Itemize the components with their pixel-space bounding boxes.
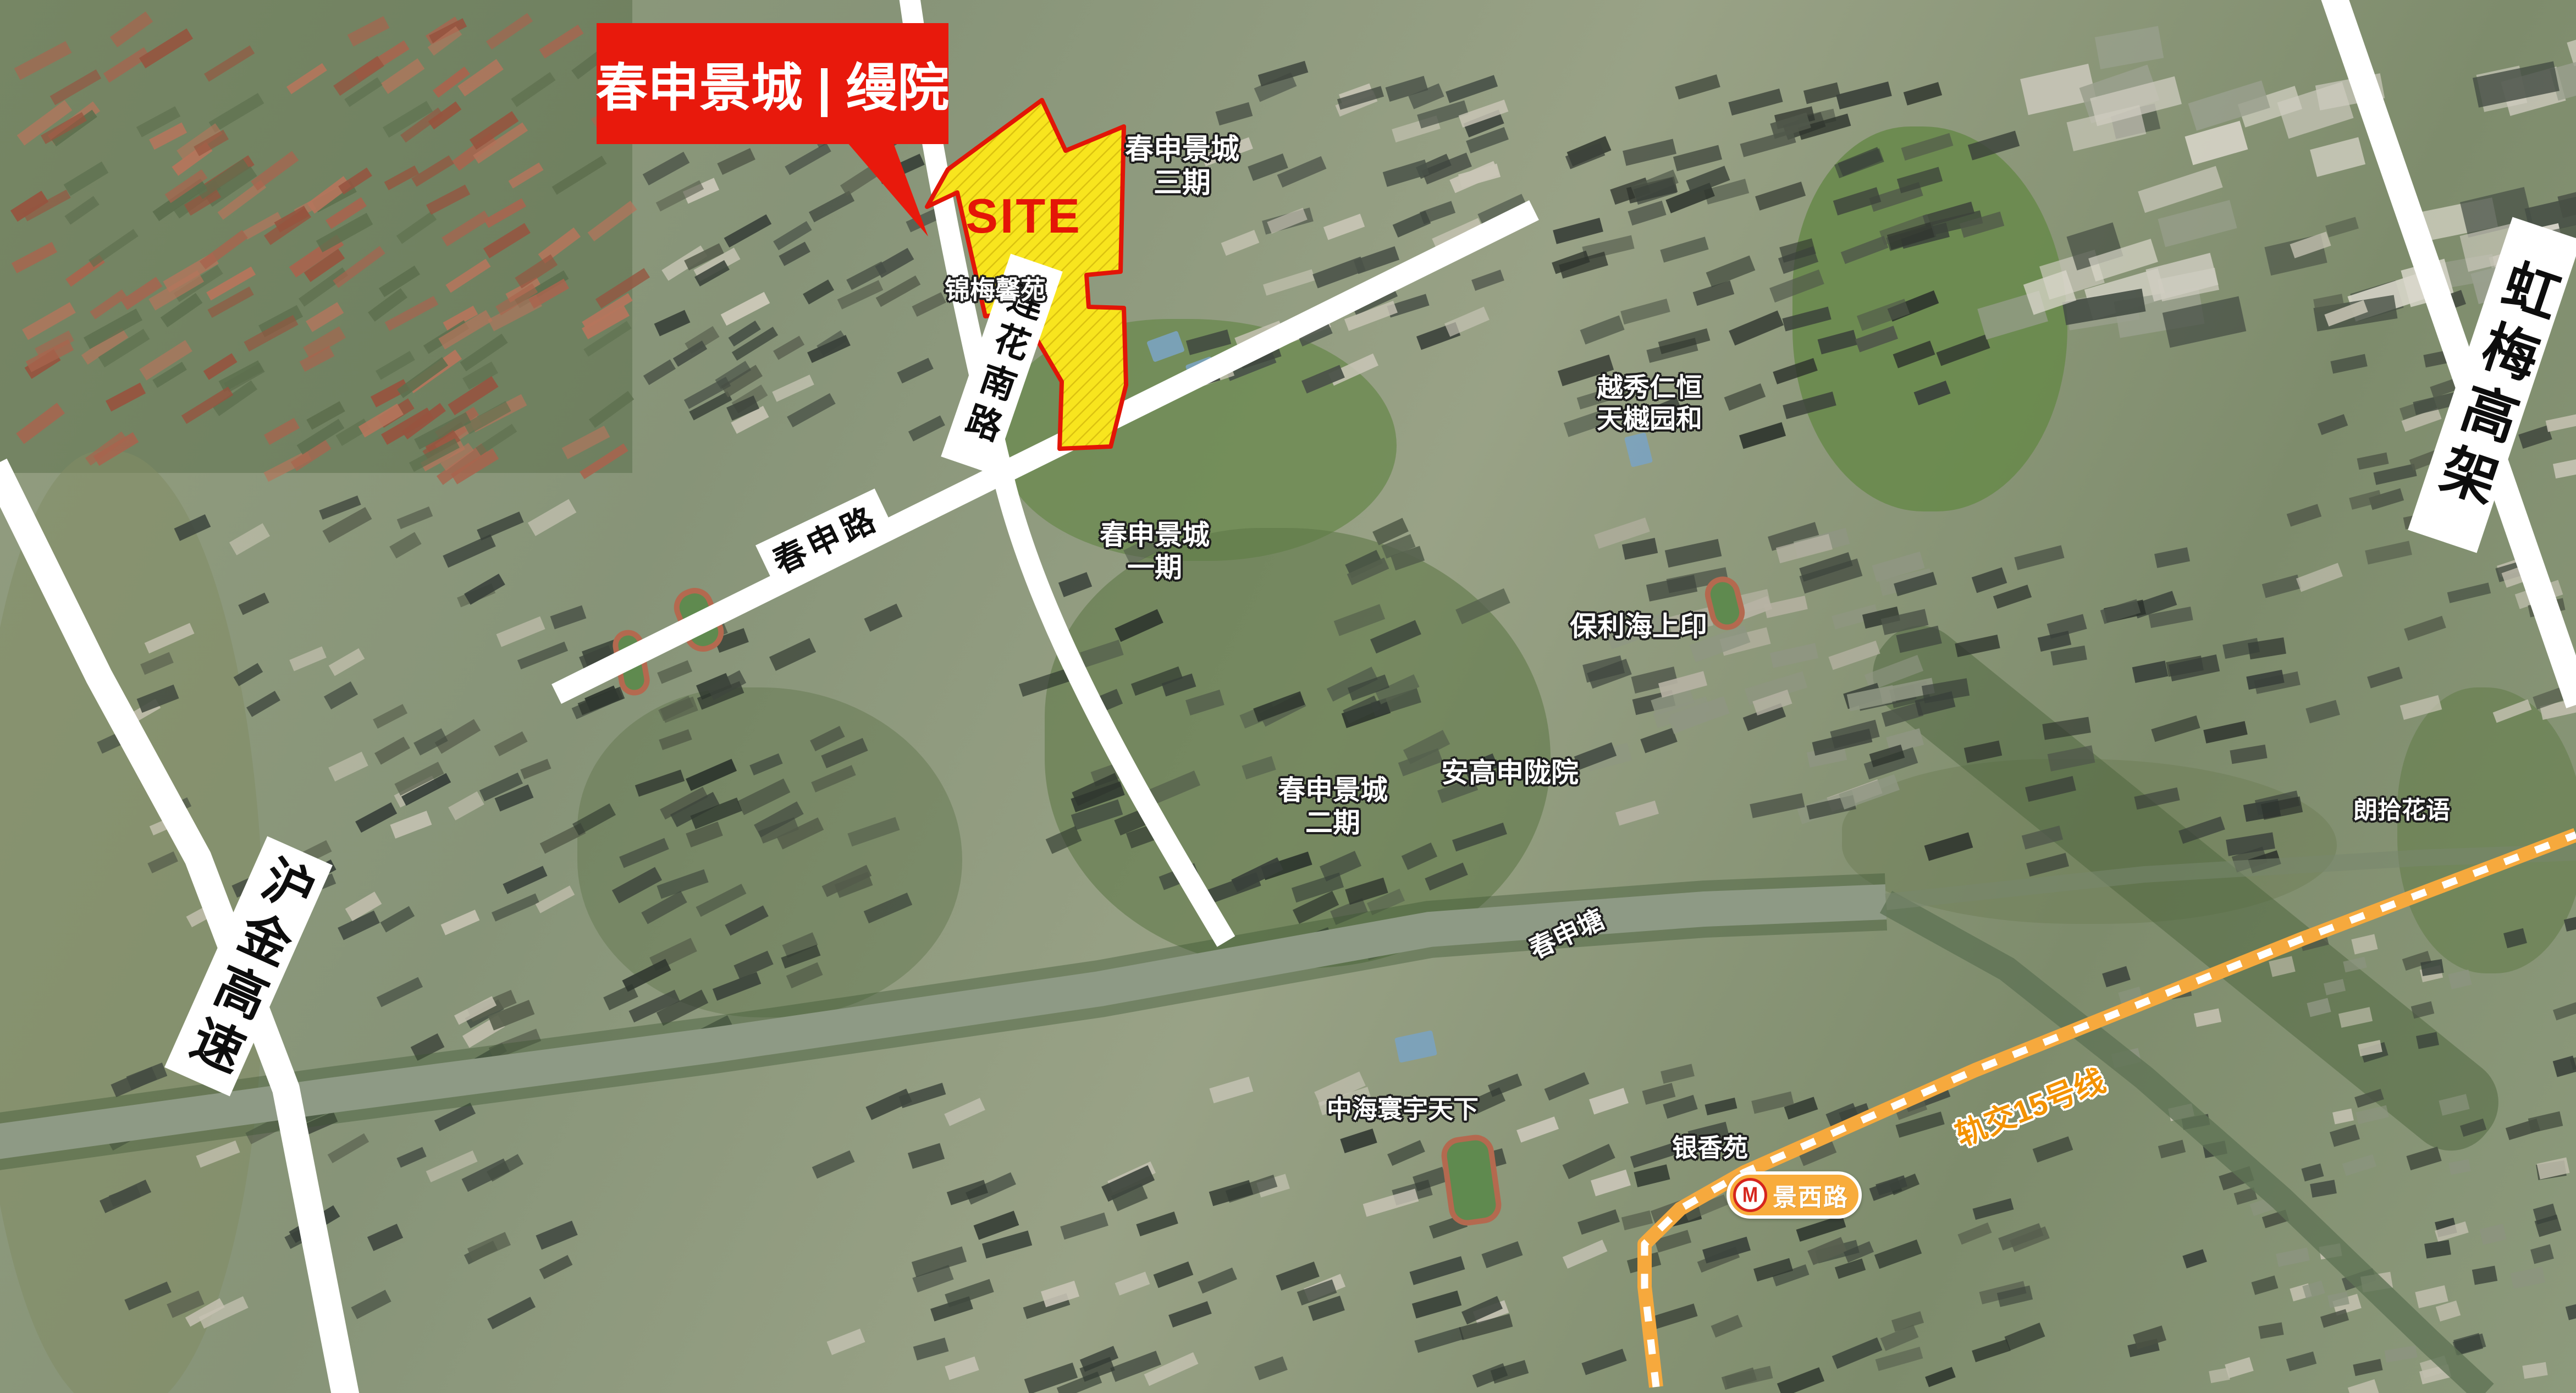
- place-label-chunshenjingcheng-2: 春申景城 二期: [1250, 774, 1415, 839]
- place-label-chunshenjingcheng-1: 春申景城 一期: [1072, 519, 1237, 584]
- metro-station-name: 景西路: [1773, 1177, 1849, 1213]
- place-label-angao-shenlongyuan: 安高申陇院: [1427, 757, 1592, 789]
- map-overlay-graphics: [0, 0, 2576, 1393]
- metro-station-jingxilu: M 景西路: [1726, 1171, 1862, 1219]
- label-text: 安高申陇院: [1427, 757, 1592, 789]
- label-text: 二期: [1250, 807, 1415, 839]
- place-label-yinxiangyuan: 银香苑: [1669, 1133, 1751, 1163]
- place-label-langshihuayu: 朗拾花语: [2347, 796, 2457, 825]
- site-banner: 春申景城 | 缦院: [597, 23, 948, 144]
- site-banner-title: 春申景城 | 缦院: [596, 46, 950, 121]
- label-text: 中海寰宇天下: [1323, 1094, 1482, 1124]
- label-text: 保利海上印: [1556, 610, 1721, 643]
- label-text: 银香苑: [1669, 1133, 1751, 1163]
- shanghai-metro-logo-icon: M: [1733, 1178, 1767, 1212]
- label-text: 朗拾花语: [2347, 796, 2457, 825]
- label-text: 春申景城: [1072, 519, 1237, 552]
- site-location-map: 莲花南路 春申路 沪金高速 虹梅高架 春申景城 三期 锦梅馨苑 春申景城 一期 …: [0, 0, 2576, 1393]
- label-text: 天樾园和: [1567, 404, 1732, 436]
- metro-logo-letter: M: [1742, 1184, 1758, 1205]
- place-label-yuexiu-renheng: 越秀仁恒 天樾园和: [1567, 373, 1732, 435]
- label-text: 春申景城: [1250, 774, 1415, 807]
- label-text: SITE: [966, 189, 1082, 243]
- site-label: SITE: [947, 188, 1101, 244]
- place-label-baoli-haishangyin: 保利海上印: [1556, 610, 1721, 643]
- label-text: 三期: [1100, 167, 1265, 200]
- banner-pointer-tail: [847, 142, 928, 236]
- label-text: 一期: [1072, 552, 1237, 584]
- label-text: 越秀仁恒: [1567, 373, 1732, 404]
- place-label-jinmeixinyuan: 锦梅馨苑: [935, 275, 1056, 305]
- place-label-zhonghai-huanyutianxia: 中海寰宇天下: [1323, 1094, 1482, 1124]
- label-text: 春申景城: [1100, 133, 1265, 167]
- label-text: 锦梅馨苑: [935, 275, 1056, 305]
- place-label-chunshenjingcheng-3: 春申景城 三期: [1100, 133, 1265, 201]
